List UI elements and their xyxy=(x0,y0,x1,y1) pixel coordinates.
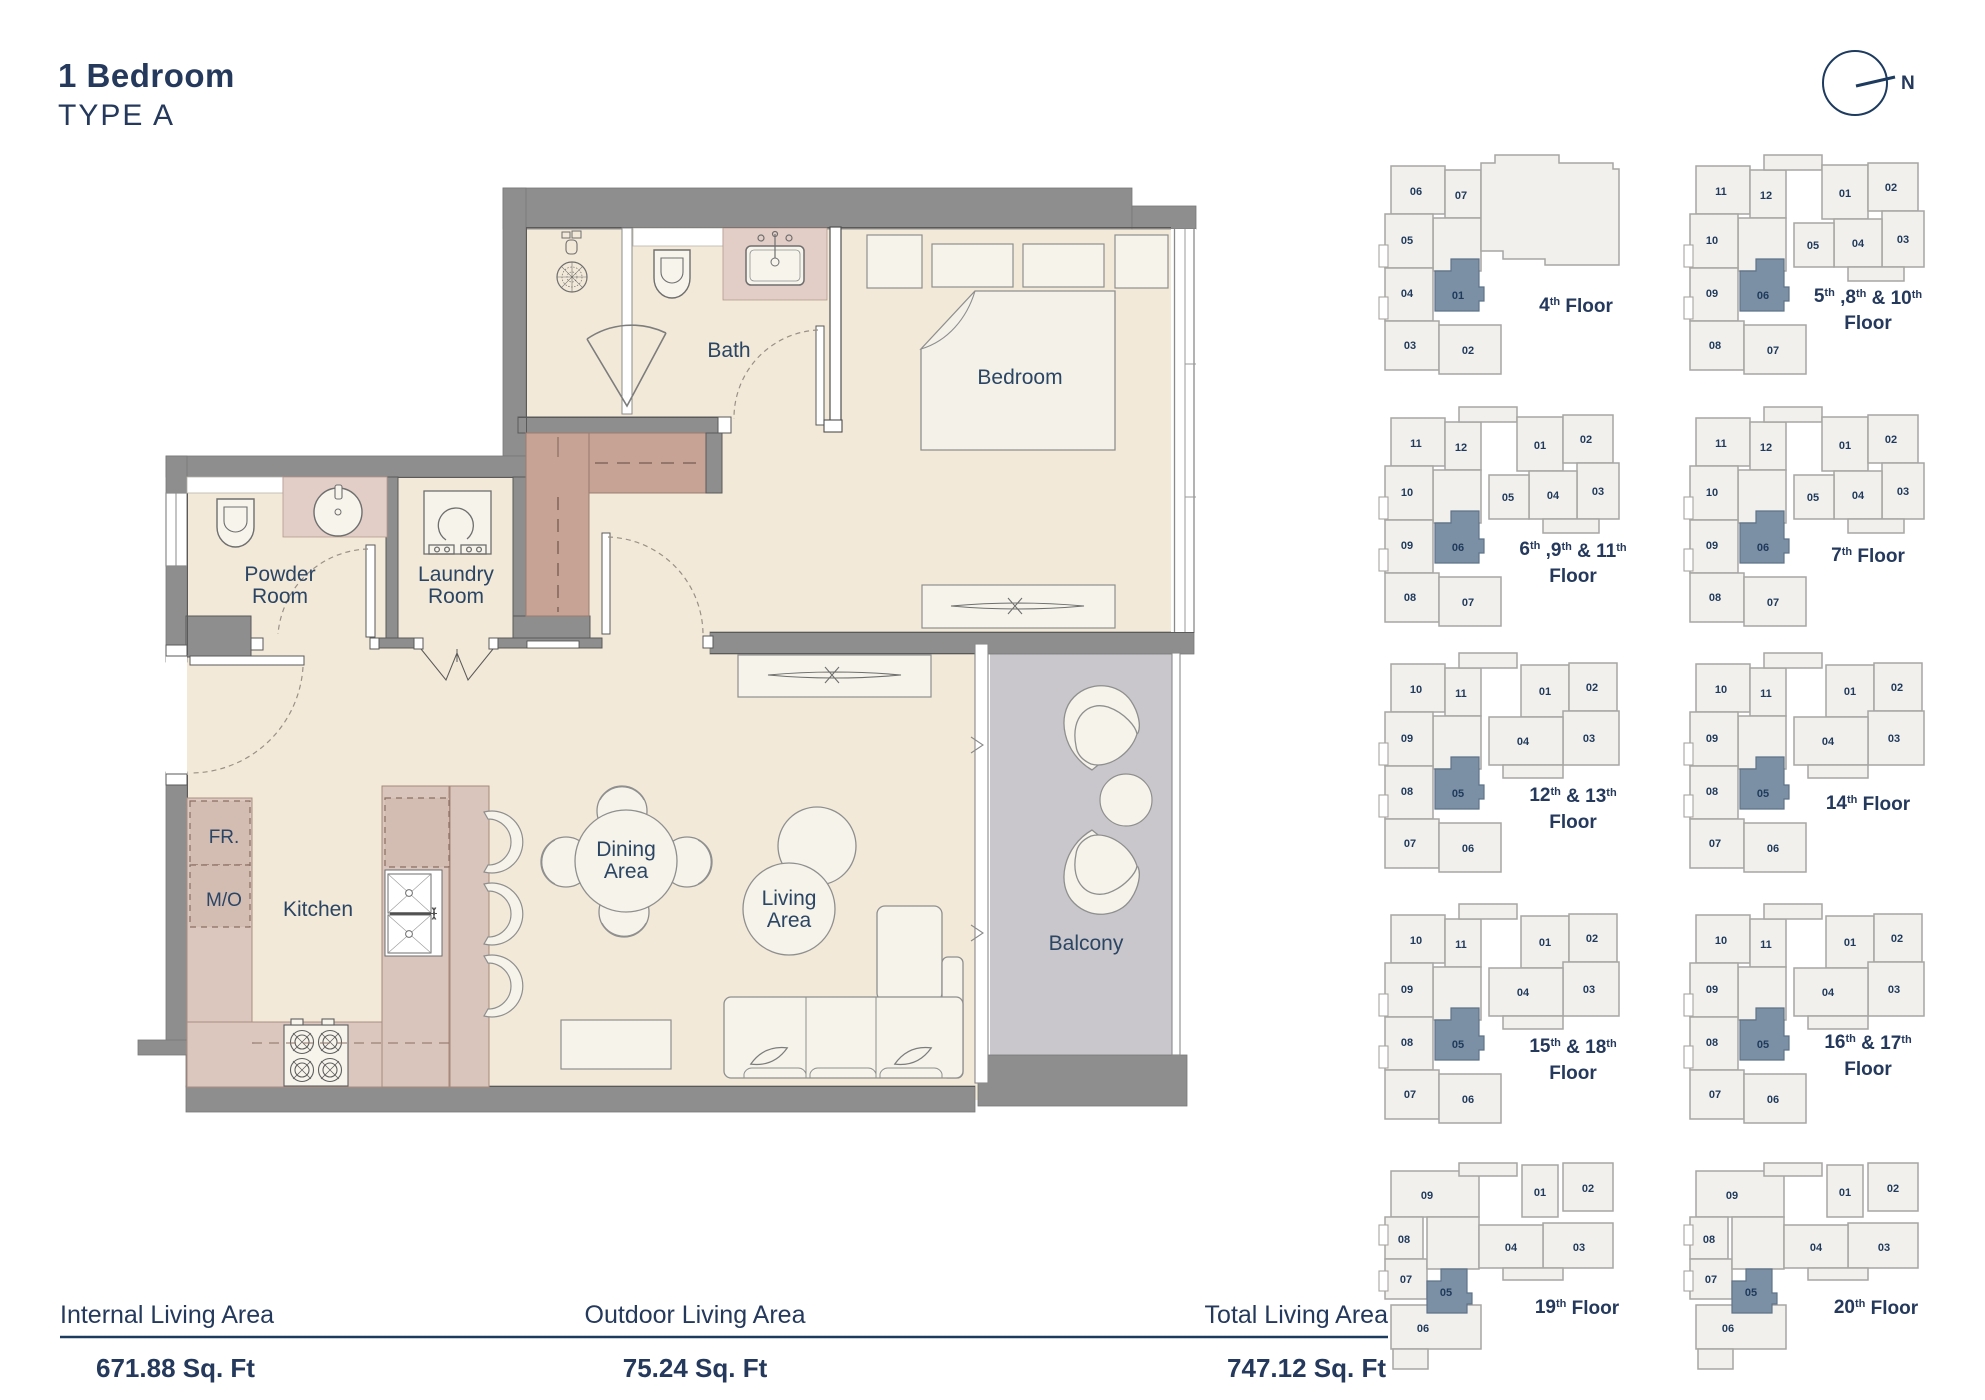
svg-text:02: 02 xyxy=(1586,682,1598,694)
svg-text:04: 04 xyxy=(1822,736,1835,748)
svg-text:07: 07 xyxy=(1400,1274,1412,1286)
svg-text:02: 02 xyxy=(1462,345,1474,357)
svg-text:01: 01 xyxy=(1534,440,1546,452)
svg-text:08: 08 xyxy=(1404,592,1416,604)
svg-text:08: 08 xyxy=(1703,1234,1715,1246)
svg-text:01: 01 xyxy=(1839,188,1851,200)
svg-text:02: 02 xyxy=(1885,434,1897,446)
svg-text:04: 04 xyxy=(1517,987,1530,999)
svg-text:Room: Room xyxy=(252,585,308,608)
svg-text:Kitchen: Kitchen xyxy=(283,898,353,921)
svg-text:06: 06 xyxy=(1462,843,1474,855)
svg-text:09: 09 xyxy=(1706,288,1718,300)
svg-text:07: 07 xyxy=(1404,1089,1416,1101)
svg-text:Floor: Floor xyxy=(1549,1063,1597,1084)
svg-text:06: 06 xyxy=(1417,1323,1429,1335)
svg-text:75.24 Sq. Ft: 75.24 Sq. Ft xyxy=(623,1353,768,1383)
svg-text:09: 09 xyxy=(1726,1190,1738,1202)
svg-text:05: 05 xyxy=(1452,788,1464,800)
svg-text:03: 03 xyxy=(1573,1242,1585,1254)
svg-text:Room: Room xyxy=(428,585,484,608)
svg-text:11: 11 xyxy=(1715,186,1727,198)
svg-text:03: 03 xyxy=(1583,733,1595,745)
svg-text:16th & 17th: 16th & 17th xyxy=(1824,1032,1912,1054)
svg-text:747.12 Sq. Ft: 747.12 Sq. Ft xyxy=(1227,1353,1386,1383)
svg-text:04: 04 xyxy=(1505,1242,1518,1254)
svg-text:06: 06 xyxy=(1757,542,1769,554)
svg-text:05: 05 xyxy=(1745,1287,1757,1299)
svg-text:05: 05 xyxy=(1452,1039,1464,1051)
svg-text:06: 06 xyxy=(1462,1094,1474,1106)
svg-text:04: 04 xyxy=(1547,490,1560,502)
svg-text:03: 03 xyxy=(1404,340,1416,352)
svg-text:08: 08 xyxy=(1401,786,1413,798)
svg-text:06: 06 xyxy=(1722,1323,1734,1335)
svg-text:10: 10 xyxy=(1706,487,1718,499)
svg-text:06: 06 xyxy=(1767,843,1779,855)
svg-text:671.88 Sq. Ft: 671.88 Sq. Ft xyxy=(96,1353,255,1383)
svg-text:01: 01 xyxy=(1844,686,1856,698)
svg-text:07: 07 xyxy=(1705,1274,1717,1286)
svg-text:02: 02 xyxy=(1580,434,1592,446)
svg-text:01: 01 xyxy=(1844,937,1856,949)
svg-text:M/O: M/O xyxy=(206,890,242,911)
svg-text:10: 10 xyxy=(1706,235,1718,247)
svg-text:20th Floor: 20th Floor xyxy=(1834,1297,1919,1319)
svg-text:02: 02 xyxy=(1586,933,1598,945)
svg-text:10: 10 xyxy=(1410,684,1422,696)
svg-text:Outdoor Living Area: Outdoor Living Area xyxy=(585,1301,806,1329)
svg-text:02: 02 xyxy=(1887,1183,1899,1195)
svg-text:03: 03 xyxy=(1592,486,1604,498)
svg-text:08: 08 xyxy=(1706,786,1718,798)
svg-text:12th & 13th: 12th & 13th xyxy=(1529,785,1617,807)
svg-text:07: 07 xyxy=(1709,1089,1721,1101)
svg-text:05: 05 xyxy=(1807,240,1819,252)
svg-text:Area: Area xyxy=(604,860,649,883)
svg-text:Internal Living Area: Internal Living Area xyxy=(60,1301,274,1329)
svg-text:07: 07 xyxy=(1767,345,1779,357)
svg-text:Laundry: Laundry xyxy=(418,563,494,586)
svg-text:08: 08 xyxy=(1398,1234,1410,1246)
svg-text:01: 01 xyxy=(1452,290,1464,302)
svg-text:01: 01 xyxy=(1534,1187,1546,1199)
svg-text:Floor: Floor xyxy=(1844,313,1892,334)
svg-text:10: 10 xyxy=(1410,935,1422,947)
svg-text:12: 12 xyxy=(1760,190,1772,202)
svg-text:Bath: Bath xyxy=(707,339,750,362)
svg-text:05: 05 xyxy=(1757,788,1769,800)
svg-text:Living: Living xyxy=(762,887,817,910)
svg-text:04: 04 xyxy=(1822,987,1835,999)
svg-text:Floor: Floor xyxy=(1549,566,1597,587)
svg-text:Bedroom: Bedroom xyxy=(977,366,1062,389)
svg-text:04: 04 xyxy=(1517,736,1530,748)
svg-text:02: 02 xyxy=(1885,182,1897,194)
svg-text:03: 03 xyxy=(1897,486,1909,498)
svg-text:01: 01 xyxy=(1539,937,1551,949)
svg-text:10: 10 xyxy=(1401,487,1413,499)
svg-text:09: 09 xyxy=(1706,984,1718,996)
svg-text:01: 01 xyxy=(1839,1187,1851,1199)
svg-text:06: 06 xyxy=(1767,1094,1779,1106)
svg-text:05: 05 xyxy=(1440,1287,1452,1299)
svg-text:07: 07 xyxy=(1709,838,1721,850)
svg-text:09: 09 xyxy=(1706,540,1718,552)
svg-text:05: 05 xyxy=(1807,492,1819,504)
svg-text:Dining: Dining xyxy=(596,838,656,861)
svg-text:07: 07 xyxy=(1404,838,1416,850)
svg-text:Floor: Floor xyxy=(1549,812,1597,833)
svg-text:08: 08 xyxy=(1706,1037,1718,1049)
svg-text:01: 01 xyxy=(1839,440,1851,452)
svg-text:FR.: FR. xyxy=(209,827,240,848)
svg-text:05: 05 xyxy=(1401,235,1413,247)
svg-text:12: 12 xyxy=(1760,442,1772,454)
svg-text:06: 06 xyxy=(1452,542,1464,554)
svg-text:05: 05 xyxy=(1502,492,1514,504)
svg-text:04: 04 xyxy=(1852,490,1865,502)
svg-text:11: 11 xyxy=(1760,939,1772,951)
svg-text:04: 04 xyxy=(1401,288,1414,300)
svg-text:10: 10 xyxy=(1715,935,1727,947)
svg-text:07: 07 xyxy=(1767,597,1779,609)
svg-text:N: N xyxy=(1901,73,1915,94)
svg-text:09: 09 xyxy=(1401,540,1413,552)
svg-text:08: 08 xyxy=(1709,592,1721,604)
svg-text:11: 11 xyxy=(1760,688,1772,700)
svg-text:03: 03 xyxy=(1583,984,1595,996)
svg-text:08: 08 xyxy=(1401,1037,1413,1049)
svg-text:06: 06 xyxy=(1410,186,1422,198)
svg-text:TYPE A: TYPE A xyxy=(58,99,175,132)
svg-text:02: 02 xyxy=(1891,933,1903,945)
svg-text:03: 03 xyxy=(1888,984,1900,996)
svg-text:01: 01 xyxy=(1539,686,1551,698)
svg-text:11: 11 xyxy=(1715,438,1727,450)
svg-text:04: 04 xyxy=(1852,238,1865,250)
svg-text:07: 07 xyxy=(1462,597,1474,609)
svg-text:04: 04 xyxy=(1810,1242,1823,1254)
svg-text:08: 08 xyxy=(1709,340,1721,352)
svg-text:Total Living Area: Total Living Area xyxy=(1205,1301,1389,1329)
svg-text:05: 05 xyxy=(1757,1039,1769,1051)
svg-text:09: 09 xyxy=(1421,1190,1433,1202)
svg-text:1 Bedroom: 1 Bedroom xyxy=(58,57,235,94)
svg-text:10: 10 xyxy=(1715,684,1727,696)
svg-text:19th Floor: 19th Floor xyxy=(1535,1297,1620,1319)
svg-text:12: 12 xyxy=(1455,442,1467,454)
svg-text:15th & 18th: 15th & 18th xyxy=(1529,1036,1617,1058)
svg-text:14th Floor: 14th Floor xyxy=(1826,793,1911,815)
svg-text:03: 03 xyxy=(1897,234,1909,246)
svg-text:Powder: Powder xyxy=(244,563,315,586)
svg-text:11: 11 xyxy=(1455,939,1467,951)
svg-text:07: 07 xyxy=(1455,190,1467,202)
svg-text:11: 11 xyxy=(1455,688,1467,700)
svg-text:Floor: Floor xyxy=(1844,1059,1892,1080)
svg-text:09: 09 xyxy=(1706,733,1718,745)
svg-text:03: 03 xyxy=(1888,733,1900,745)
svg-text:02: 02 xyxy=(1891,682,1903,694)
svg-text:Balcony: Balcony xyxy=(1049,932,1124,955)
svg-text:09: 09 xyxy=(1401,984,1413,996)
svg-text:02: 02 xyxy=(1582,1183,1594,1195)
svg-text:Area: Area xyxy=(767,909,812,932)
svg-text:09: 09 xyxy=(1401,733,1413,745)
svg-text:03: 03 xyxy=(1878,1242,1890,1254)
svg-text:11: 11 xyxy=(1410,438,1422,450)
svg-text:06: 06 xyxy=(1757,290,1769,302)
